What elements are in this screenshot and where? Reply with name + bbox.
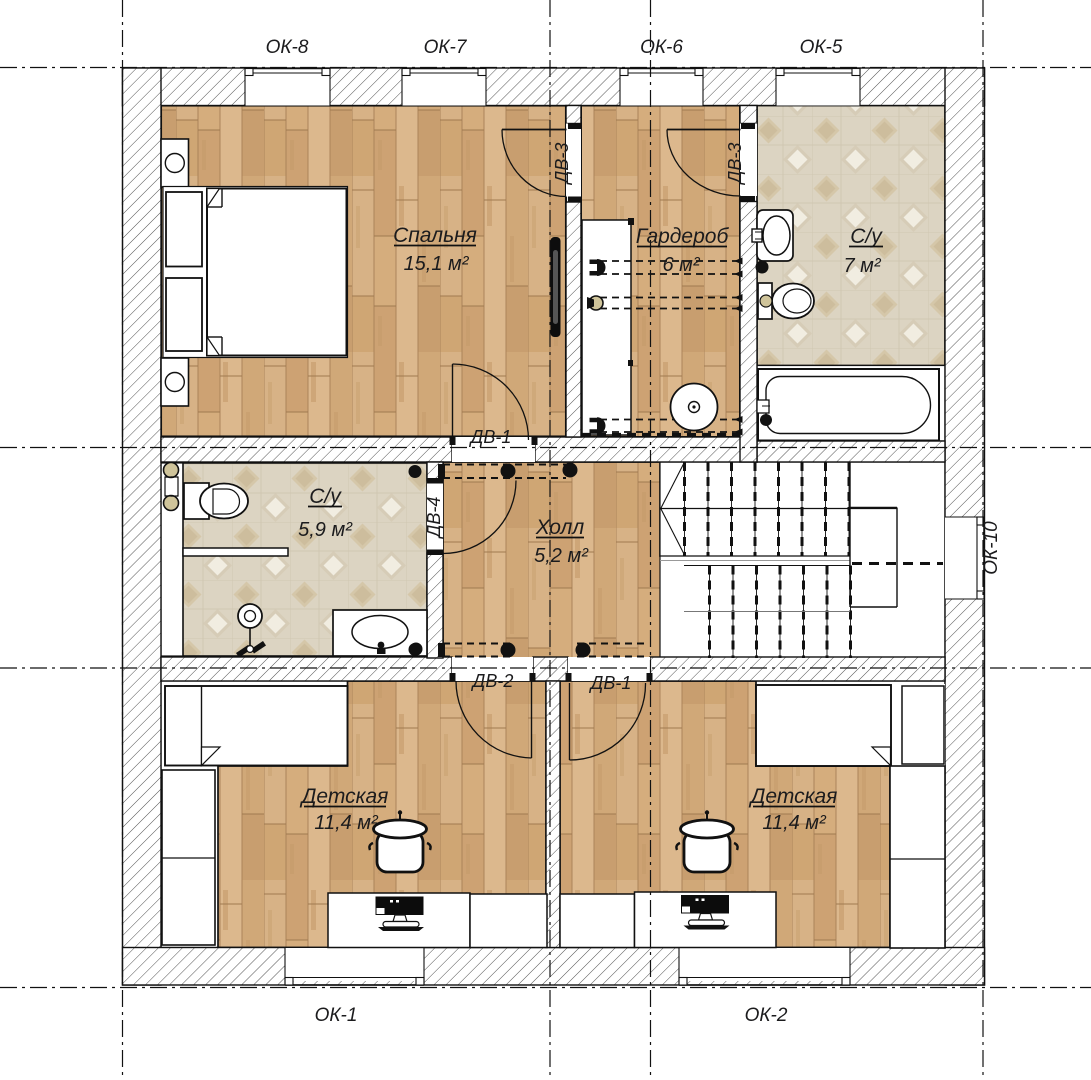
svg-text:ДВ-3: ДВ-3	[552, 143, 572, 186]
svg-text:ДВ-4: ДВ-4	[424, 497, 444, 540]
svg-text:5,2 м²: 5,2 м²	[534, 545, 589, 567]
svg-text:Детская: Детская	[300, 785, 389, 808]
svg-text:ОК-2: ОК-2	[745, 1005, 788, 1026]
svg-text:Спальня: Спальня	[393, 224, 477, 247]
svg-text:ДВ-2: ДВ-2	[471, 671, 514, 691]
svg-text:15,1 м²: 15,1 м²	[404, 253, 470, 275]
svg-text:ДВ-1: ДВ-1	[469, 427, 512, 447]
svg-text:ОК-5: ОК-5	[800, 37, 843, 58]
svg-text:ДВ-3: ДВ-3	[725, 143, 745, 186]
svg-text:11,4 м²: 11,4 м²	[314, 812, 379, 834]
svg-text:Гардероб: Гардероб	[636, 225, 730, 248]
svg-text:ОК-8: ОК-8	[266, 37, 309, 58]
svg-text:С/у: С/у	[850, 225, 883, 248]
svg-text:С/у: С/у	[309, 485, 342, 508]
svg-text:5,9 м²: 5,9 м²	[298, 519, 353, 541]
svg-text:Холл: Холл	[535, 516, 585, 539]
svg-text:ОК-10: ОК-10	[981, 521, 1002, 575]
svg-text:ДВ-1: ДВ-1	[589, 673, 632, 693]
svg-text:ОК-1: ОК-1	[315, 1005, 358, 1026]
svg-text:7 м²: 7 м²	[843, 255, 881, 277]
svg-text:ОК-6: ОК-6	[640, 37, 683, 58]
svg-text:ОК-7: ОК-7	[424, 37, 468, 58]
svg-text:11,4 м²: 11,4 м²	[762, 812, 827, 834]
svg-text:Детская: Детская	[749, 785, 838, 808]
svg-text:6 м²: 6 м²	[662, 254, 700, 276]
